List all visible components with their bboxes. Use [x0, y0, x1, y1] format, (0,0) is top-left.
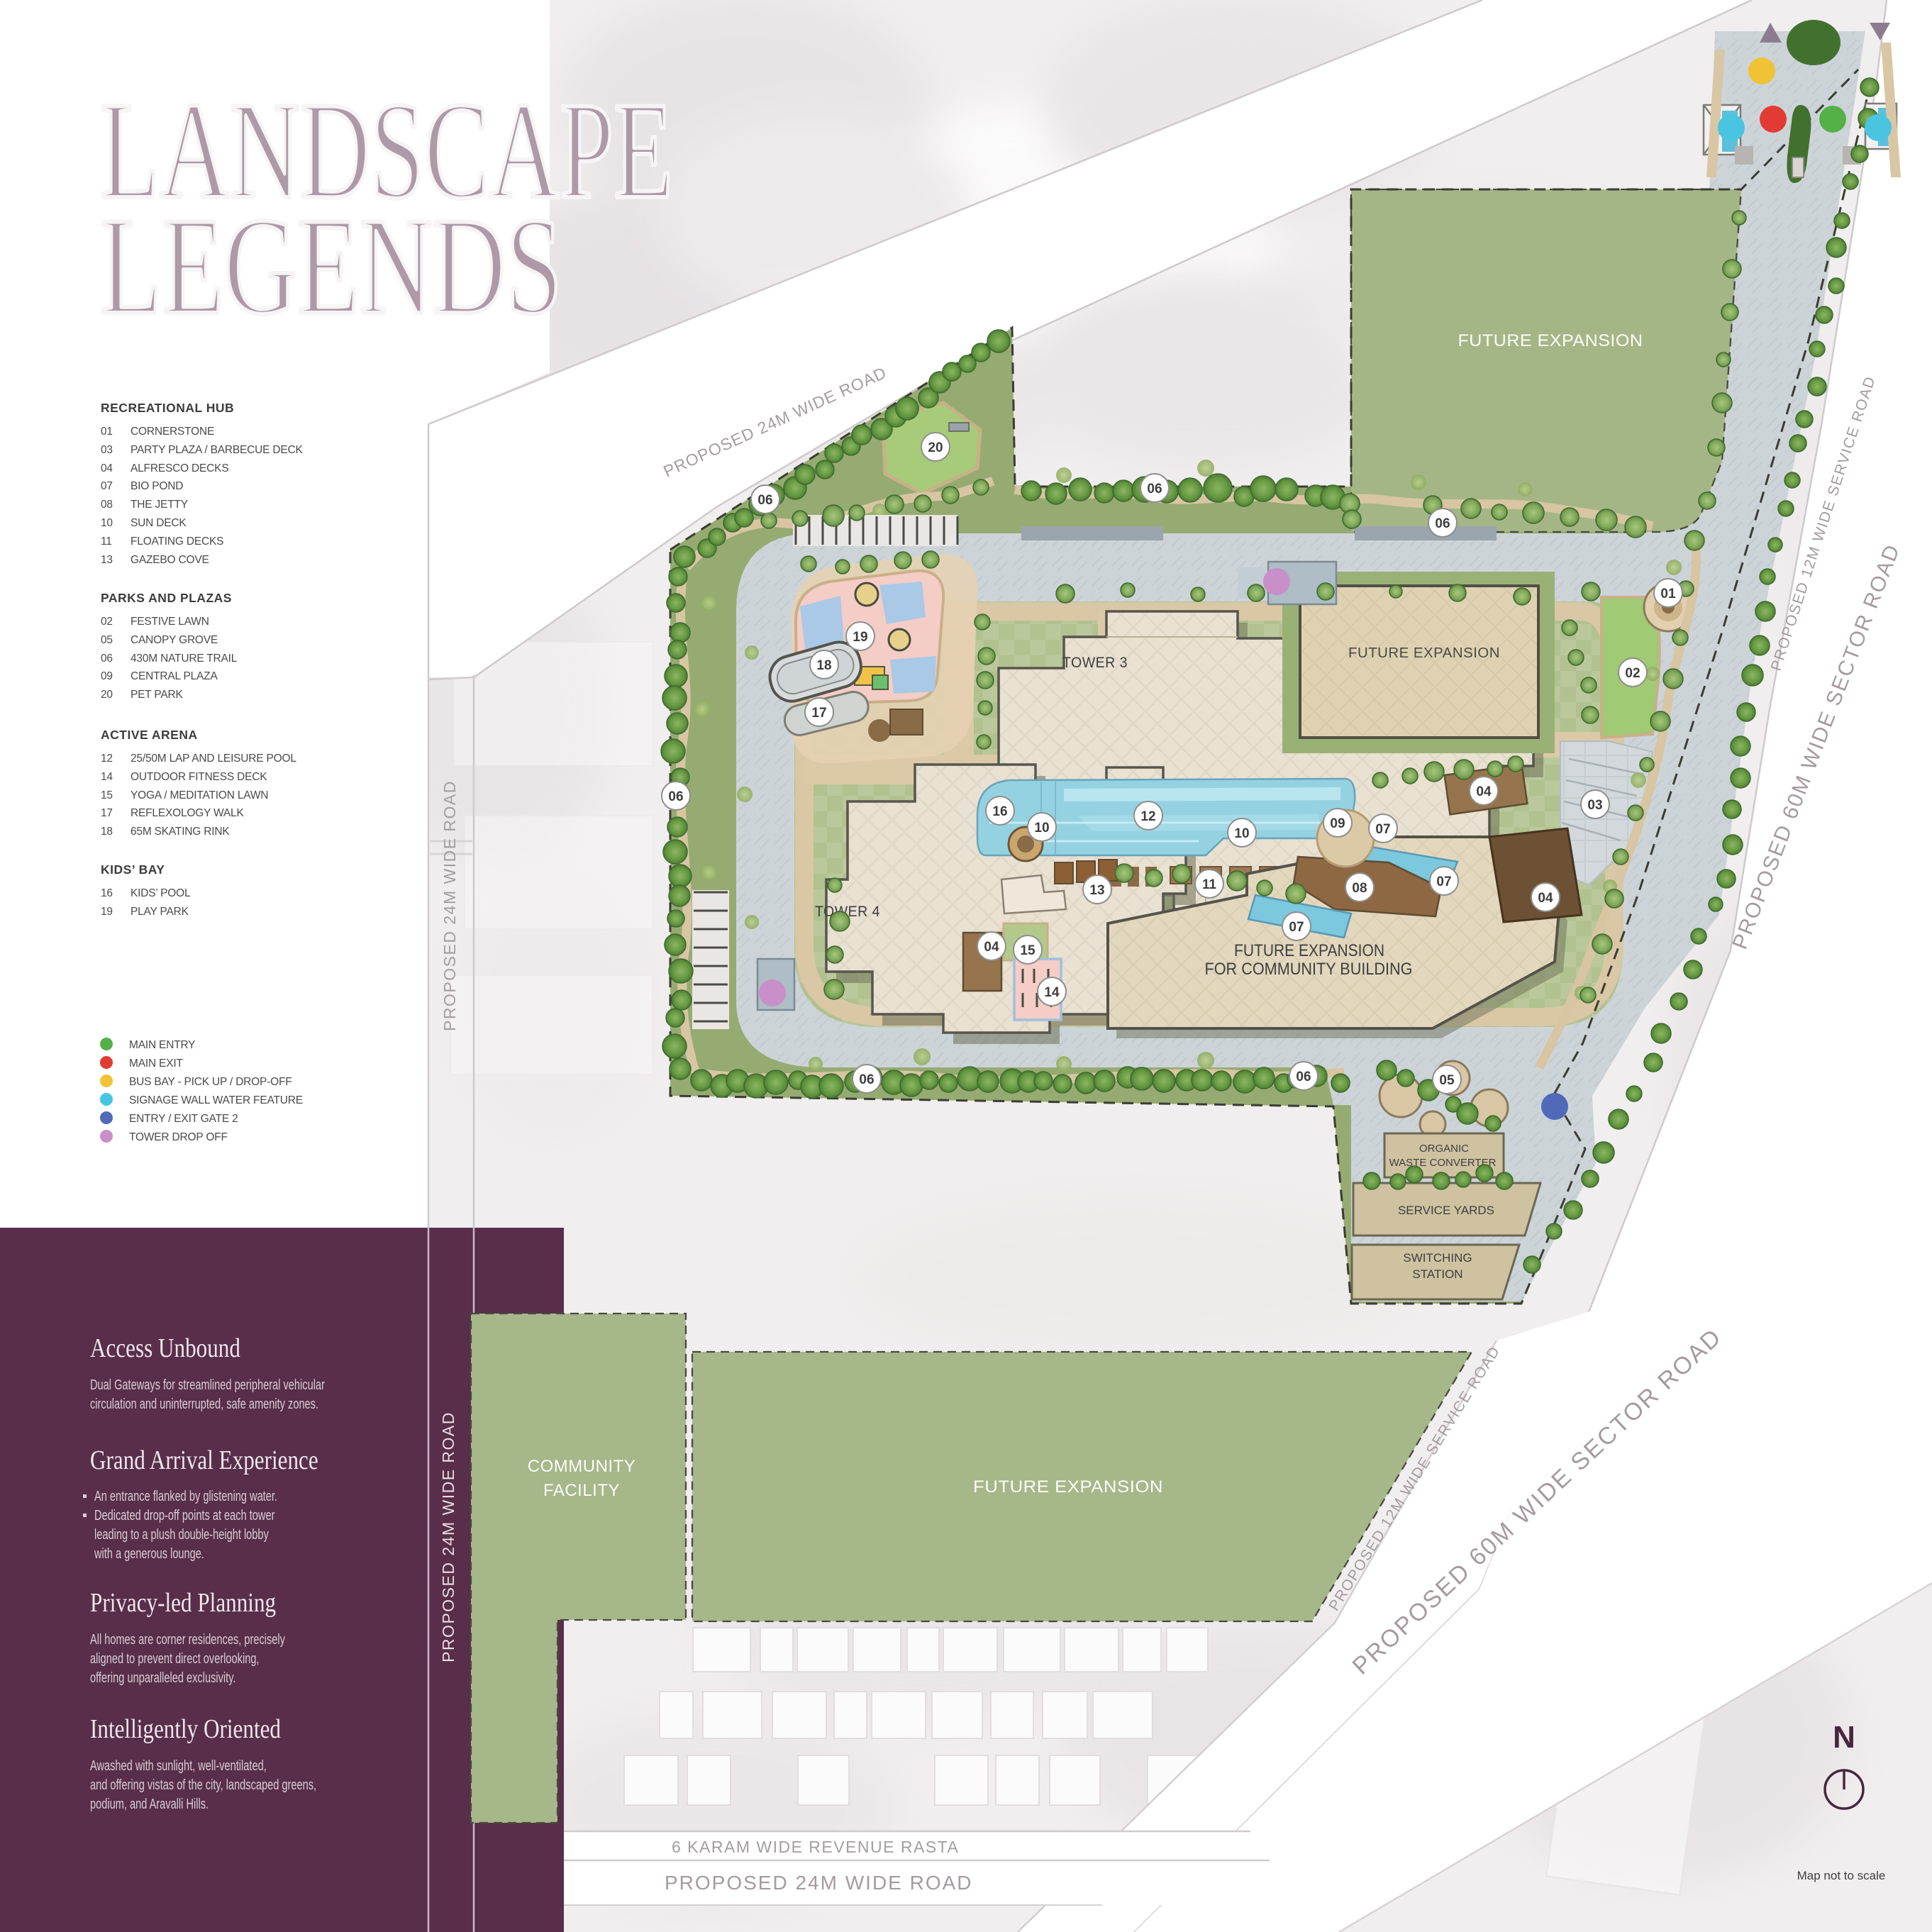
svg-text:20: 20: [101, 689, 113, 701]
svg-text:offering unparalleled exclusiv: offering unparalleled exclusivity.: [90, 1670, 235, 1686]
svg-text:16: 16: [992, 804, 1007, 819]
svg-text:MAIN ENTRY: MAIN ENTRY: [129, 1039, 195, 1051]
svg-text:COMMUNITY: COMMUNITY: [528, 1457, 635, 1476]
svg-text:03: 03: [1587, 798, 1602, 813]
svg-text:OUTDOOR FITNESS DECK: OUTDOOR FITNESS DECK: [131, 771, 267, 783]
svg-text:17: 17: [811, 706, 826, 721]
svg-text:19: 19: [853, 630, 867, 645]
svg-text:RECREATIONAL HUB: RECREATIONAL HUB: [101, 401, 234, 415]
svg-text:07: 07: [1289, 920, 1304, 935]
svg-text:18: 18: [816, 658, 831, 673]
svg-text:10: 10: [1234, 826, 1249, 841]
svg-text:TOWER 3: TOWER 3: [1062, 655, 1128, 671]
svg-text:with a generous lounge.: with a generous lounge.: [94, 1545, 204, 1562]
svg-text:07: 07: [1436, 875, 1451, 889]
svg-text:Intelligently Oriented: Intelligently Oriented: [90, 1714, 281, 1744]
svg-text:19: 19: [101, 906, 113, 918]
svg-text:GAZEBO COVE: GAZEBO COVE: [131, 554, 209, 566]
svg-text:06: 06: [1435, 516, 1450, 531]
svg-text:13: 13: [101, 554, 113, 566]
svg-text:N: N: [1833, 1720, 1855, 1755]
svg-text:Awashed with sunlight, well-ve: Awashed with sunlight, well-ventilated,: [90, 1758, 267, 1774]
svg-text:FOR COMMUNITY BUILDING: FOR COMMUNITY BUILDING: [1205, 960, 1413, 979]
svg-text:FESTIVE LAWN: FESTIVE LAWN: [131, 616, 209, 628]
svg-text:04: 04: [1476, 784, 1492, 799]
svg-text:and offering vistas of the cit: and offering vistas of the city, landsca…: [90, 1777, 316, 1793]
svg-text:06: 06: [101, 653, 113, 665]
svg-text:PARKS AND PLAZAS: PARKS AND PLAZAS: [101, 591, 232, 605]
svg-text:06: 06: [757, 493, 772, 508]
svg-text:04: 04: [101, 462, 113, 474]
svg-text:06: 06: [1296, 1070, 1311, 1084]
svg-text:14: 14: [1044, 985, 1060, 1000]
svg-text:65M SKATING RINK: 65M SKATING RINK: [131, 826, 230, 838]
svg-text:Map not to scale: Map not to scale: [1797, 1869, 1886, 1882]
svg-text:03: 03: [101, 444, 113, 456]
svg-text:04: 04: [984, 940, 999, 955]
svg-text:25/50M LAP AND LEISURE POOL: 25/50M LAP AND LEISURE POOL: [131, 753, 296, 765]
svg-text:Privacy-led Planning: Privacy-led Planning: [90, 1587, 276, 1618]
svg-text:13: 13: [1089, 883, 1104, 898]
svg-text:09: 09: [1330, 816, 1345, 831]
svg-text:14: 14: [101, 771, 113, 783]
svg-text:15: 15: [1020, 943, 1036, 958]
svg-text:09: 09: [101, 670, 113, 682]
svg-text:07: 07: [101, 480, 113, 492]
svg-text:FUTURE EXPANSION: FUTURE EXPANSION: [1348, 645, 1500, 661]
svg-text:08: 08: [101, 499, 113, 511]
svg-text:10: 10: [1034, 821, 1049, 835]
svg-text:PET PARK: PET PARK: [131, 689, 183, 701]
svg-text:All homes are corner residence: All homes are corner residences, precise…: [90, 1631, 285, 1648]
svg-text:CENTRAL PLAZA: CENTRAL PLAZA: [131, 670, 218, 682]
svg-text:08: 08: [1352, 881, 1367, 896]
svg-text:04: 04: [1538, 891, 1553, 906]
svg-text:6 KARAM WIDE REVENUE RASTA: 6 KARAM WIDE REVENUE RASTA: [672, 1838, 959, 1856]
svg-text:20: 20: [928, 440, 943, 455]
svg-text:leading to a plush double-heig: leading to a plush double-height lobby: [94, 1526, 269, 1543]
svg-text:Dual Gateways for streamlined: Dual Gateways for streamlined peripheral…: [90, 1377, 325, 1393]
svg-text:10: 10: [101, 517, 113, 529]
svg-text:430M NATURE TRAIL: 430M NATURE TRAIL: [131, 653, 238, 665]
svg-text:MAIN EXIT: MAIN EXIT: [129, 1057, 183, 1070]
svg-text:05: 05: [1439, 1073, 1455, 1088]
svg-text:11: 11: [101, 535, 112, 548]
svg-text:02: 02: [101, 616, 113, 628]
svg-text:12: 12: [1140, 809, 1155, 824]
svg-text:18: 18: [101, 826, 113, 838]
svg-text:17: 17: [101, 807, 113, 819]
svg-text:PARTY PLAZA / BARBECUE DECK: PARTY PLAZA / BARBECUE DECK: [131, 444, 304, 456]
svg-text:12: 12: [101, 753, 113, 765]
svg-text:06: 06: [668, 789, 683, 804]
svg-text:ALFRESCO DECKS: ALFRESCO DECKS: [131, 462, 228, 474]
svg-text:STATION: STATION: [1412, 1267, 1462, 1281]
svg-text:Dedicated drop-off points at e: Dedicated drop-off points at each tower: [94, 1507, 275, 1523]
svg-text:SERVICE YARDS: SERVICE YARDS: [1398, 1204, 1494, 1217]
svg-text:ENTRY / EXIT GATE 2: ENTRY / EXIT GATE 2: [129, 1113, 238, 1125]
svg-text:FUTURE EXPANSION: FUTURE EXPANSION: [973, 1477, 1163, 1497]
svg-text:TOWER DROP OFF: TOWER DROP OFF: [129, 1131, 228, 1143]
svg-text:circulation and uninterrupted,: circulation and uninterrupted, safe amen…: [90, 1396, 318, 1412]
svg-text:Access Unbound: Access Unbound: [90, 1333, 240, 1363]
svg-text:06: 06: [1147, 482, 1162, 496]
svg-text:BIO POND: BIO POND: [131, 480, 183, 492]
svg-text:11: 11: [1202, 877, 1217, 892]
svg-text:THE JETTY: THE JETTY: [131, 499, 188, 511]
svg-text:SWITCHING: SWITCHING: [1403, 1251, 1472, 1265]
svg-text:FLOATING DECKS: FLOATING DECKS: [131, 535, 223, 548]
svg-text:aligned to prevent direct over: aligned to prevent direct overlooking,: [90, 1650, 259, 1667]
svg-text:15: 15: [101, 789, 113, 801]
svg-text:16: 16: [101, 887, 113, 899]
svg-text:ACTIVE ARENA: ACTIVE ARENA: [101, 728, 198, 742]
svg-text:LEGENDS: LEGENDS: [100, 189, 562, 343]
svg-text:KIDS’ BAY: KIDS’ BAY: [101, 862, 165, 877]
svg-text:CANOPY GROVE: CANOPY GROVE: [131, 634, 218, 646]
svg-text:FUTURE EXPANSION: FUTURE EXPANSION: [1458, 331, 1643, 350]
svg-text:07: 07: [1375, 822, 1390, 837]
svg-text:YOGA / MEDITATION LAWN: YOGA / MEDITATION LAWN: [131, 789, 268, 801]
svg-text:ORGANIC: ORGANIC: [1419, 1143, 1469, 1155]
svg-text:CORNERSTONE: CORNERSTONE: [131, 426, 214, 438]
svg-text:01: 01: [101, 426, 113, 438]
svg-text:05: 05: [101, 634, 113, 646]
svg-text:FUTURE EXPANSION: FUTURE EXPANSION: [1234, 941, 1384, 960]
svg-text:FACILITY: FACILITY: [543, 1481, 620, 1500]
svg-text:PROPOSED 24M WIDE ROAD: PROPOSED 24M WIDE ROAD: [440, 780, 459, 1031]
svg-text:01: 01: [1660, 587, 1676, 601]
svg-text:SIGNAGE WALL WATER FEATURE: SIGNAGE WALL WATER FEATURE: [129, 1094, 303, 1106]
svg-text:PROPOSED 24M WIDE ROAD: PROPOSED 24M WIDE ROAD: [439, 1411, 457, 1662]
svg-text:PROPOSED 24M WIDE ROAD: PROPOSED 24M WIDE ROAD: [665, 1872, 973, 1894]
svg-text:BUS BAY - PICK UP / DROP-OFF: BUS BAY - PICK UP / DROP-OFF: [129, 1076, 292, 1088]
svg-text:Grand Arrival Experience: Grand Arrival Experience: [90, 1445, 318, 1475]
svg-text:SUN DECK: SUN DECK: [131, 517, 187, 529]
svg-text:podium, and Aravalli Hills.: podium, and Aravalli Hills.: [90, 1796, 209, 1812]
svg-text:02: 02: [1625, 666, 1640, 681]
svg-text:REFLEXOLOGY WALK: REFLEXOLOGY WALK: [131, 807, 244, 819]
svg-text:06: 06: [859, 1072, 874, 1087]
svg-text:KIDS’ POOL: KIDS’ POOL: [131, 887, 191, 899]
svg-text:PLAY PARK: PLAY PARK: [131, 906, 189, 918]
svg-text:An entrance flanked by glisten: An entrance flanked by glistening water.: [94, 1488, 277, 1504]
